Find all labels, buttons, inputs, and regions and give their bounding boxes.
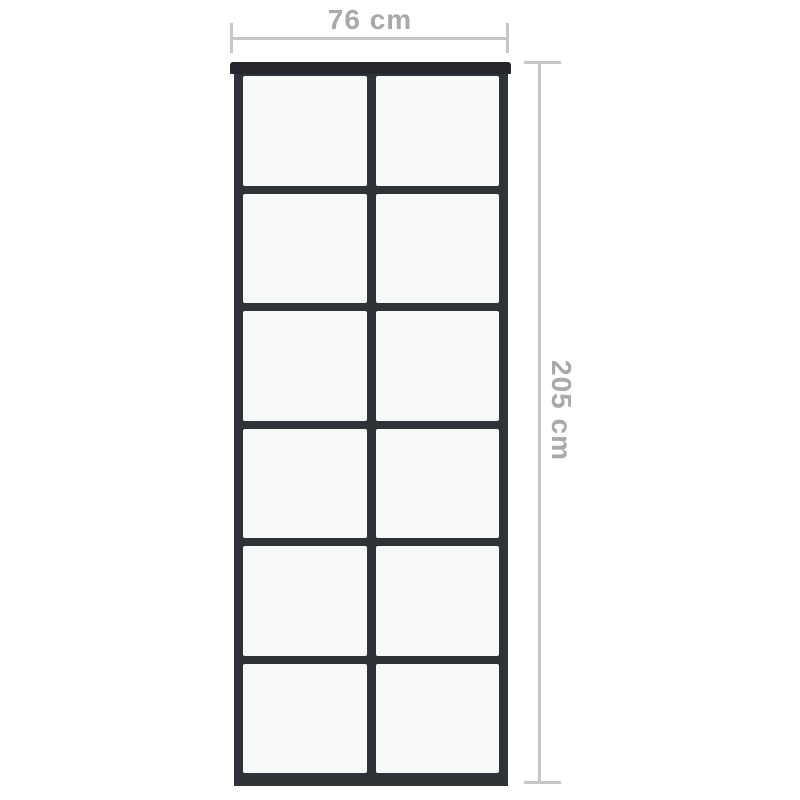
glass-pane (376, 429, 500, 539)
width-dimension-left-tick (230, 23, 233, 53)
width-dimension-line (230, 37, 509, 40)
sliding-door-frame (234, 74, 508, 786)
height-dimension-label-wrap: 205 cm (545, 61, 577, 759)
glass-pane (376, 194, 500, 304)
glass-pane (376, 311, 500, 421)
glass-pane (243, 76, 367, 186)
glass-pane (243, 194, 367, 304)
glass-pane (243, 546, 367, 656)
glass-pane-grid (243, 76, 499, 773)
product-dimension-diagram: 76 cm 205 cm (0, 0, 800, 800)
glass-pane (243, 664, 367, 774)
glass-pane (376, 76, 500, 186)
glass-pane (243, 429, 367, 539)
glass-pane (243, 311, 367, 421)
height-dimension-bottom-tick (524, 781, 561, 784)
width-dimension-right-tick (506, 23, 509, 53)
door-top-track (230, 62, 511, 74)
width-dimension-label: 76 cm (231, 4, 509, 36)
height-dimension-line (538, 61, 541, 784)
height-dimension-label: 205 cm (545, 360, 577, 461)
glass-pane (376, 664, 500, 774)
glass-pane (376, 546, 500, 656)
